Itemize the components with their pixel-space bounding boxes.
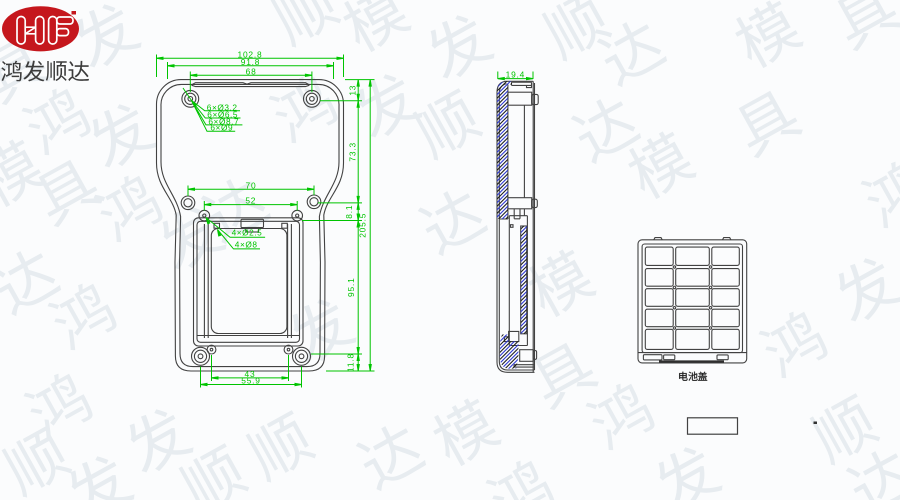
- svg-text:91.8: 91.8: [241, 57, 261, 67]
- svg-text:13: 13: [348, 85, 358, 96]
- svg-text:73.3: 73.3: [348, 142, 358, 162]
- svg-text:4×Ø8: 4×Ø8: [235, 240, 258, 250]
- svg-text:19.4: 19.4: [506, 70, 526, 80]
- svg-text:52: 52: [245, 196, 256, 206]
- svg-text:4×Ø2.5: 4×Ø2.5: [232, 228, 263, 238]
- svg-text:6×Ø9: 6×Ø9: [210, 123, 233, 133]
- svg-text:55.9: 55.9: [241, 376, 261, 386]
- svg-text:11.8: 11.8: [346, 353, 356, 372]
- svg-text:205.5: 205.5: [358, 213, 368, 238]
- svg-text:68: 68: [246, 66, 257, 76]
- svg-text:70: 70: [246, 180, 257, 190]
- svg-text:8.1: 8.1: [344, 205, 354, 219]
- svg-text:95.1: 95.1: [346, 277, 356, 297]
